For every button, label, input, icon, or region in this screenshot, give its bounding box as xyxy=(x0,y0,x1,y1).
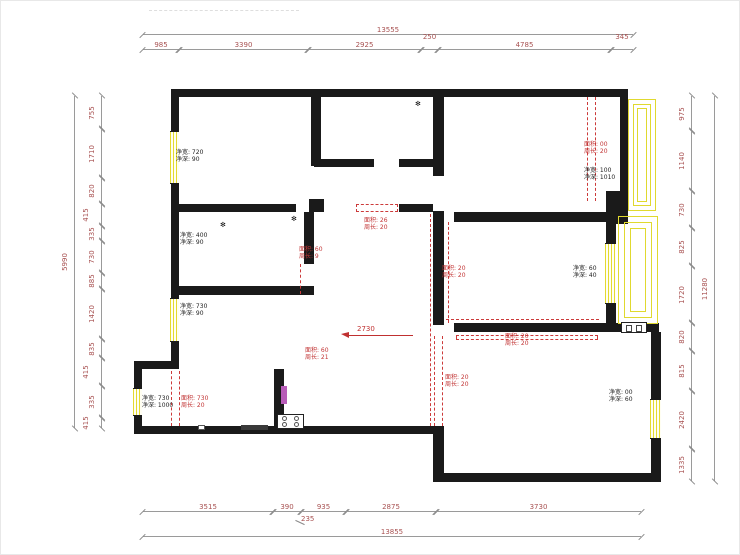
opening-dash-box xyxy=(356,204,398,212)
wall xyxy=(651,439,661,482)
area-annotation-line: 周长: 20 xyxy=(181,402,208,409)
room-size-line: 净深: 60 xyxy=(609,396,633,403)
dimension-label: 3390 xyxy=(235,41,253,49)
floor-plan-canvas: 13555 985 3390 2925 250 4785 345 3515 39… xyxy=(0,0,740,555)
wall xyxy=(399,159,433,167)
dimension-segment: 2875 xyxy=(346,511,436,512)
dimension-segment: 1720 xyxy=(691,266,692,323)
dimension-arrow-line xyxy=(348,335,413,336)
wall xyxy=(399,204,433,212)
dimension-segment: 390 xyxy=(273,511,301,512)
paint-dash-line xyxy=(179,371,180,426)
wall xyxy=(134,361,142,388)
dimension-label: 1420 xyxy=(88,305,96,323)
wall xyxy=(171,89,179,131)
dimension-label: 335 xyxy=(88,395,96,408)
dimension-label: 835 xyxy=(88,342,96,355)
dimension-label: 2875 xyxy=(382,503,400,511)
area-annotation: 面积: 00 周长: 20 xyxy=(584,141,608,155)
area-annotation-line: 周长: 20 xyxy=(442,272,466,279)
window xyxy=(133,388,142,416)
area-annotation: 面积: 26 周长: 20 xyxy=(364,217,388,231)
dimension-segment: 1420 xyxy=(101,289,102,339)
paint-dash-line xyxy=(446,319,599,320)
dimension-label: 1335 xyxy=(678,456,686,474)
dimension-label: 985 xyxy=(154,41,167,49)
dimension-label: 1710 xyxy=(88,145,96,163)
dimension-label: 935 xyxy=(317,503,330,511)
dimension-segment: 3390 xyxy=(179,49,308,50)
dimension-label: 3515 xyxy=(199,503,217,511)
dimension-segment: 730 xyxy=(101,241,102,273)
dimension-segment: 2925 xyxy=(308,49,421,50)
room-size-line: 净深: 1000 xyxy=(142,402,173,409)
room-size-line: 净深: 90 xyxy=(176,156,203,163)
room-size-line: 净深: 40 xyxy=(573,272,597,279)
paint-dash-line xyxy=(300,264,301,294)
dimension-label: 415 xyxy=(82,416,90,429)
area-annotation-line: 周长: 20 xyxy=(584,148,608,155)
wall xyxy=(620,89,628,196)
wall xyxy=(454,212,606,222)
light-symbol: ✻ xyxy=(220,222,226,229)
wall xyxy=(606,224,616,243)
dimension-segment: 415 xyxy=(101,358,102,386)
faint-artifact-line xyxy=(149,10,299,11)
paint-dash-line xyxy=(430,214,431,426)
light-symbol: ✻ xyxy=(291,216,297,223)
dimension-label: 3730 xyxy=(530,503,548,511)
area-annotation-line: 周长: 20 xyxy=(445,381,469,388)
dimension-segment: 2420 xyxy=(691,391,692,449)
paint-dash-line xyxy=(442,336,443,426)
dimension-label: 975 xyxy=(678,107,686,120)
dimension-label: 2420 xyxy=(678,411,686,429)
dimension-label: 335 xyxy=(88,227,96,240)
wall xyxy=(311,89,321,166)
dimension-label: 885 xyxy=(88,274,96,287)
dimension-label: 415 xyxy=(82,365,90,378)
dimension-total-left: 5990 xyxy=(74,96,75,428)
dimension-total-right: 11280 xyxy=(714,96,715,481)
wall xyxy=(433,473,661,482)
dimension-segment: 730 xyxy=(691,191,692,228)
dimension-segment: 985 xyxy=(143,49,179,50)
dimension-segment: 415 xyxy=(101,204,102,226)
room-size-label: 净宽: 730 净深: 1000 xyxy=(142,395,173,409)
dimension-label: 1720 xyxy=(678,286,686,304)
wall xyxy=(433,96,444,176)
area-annotation: 面积: 60 周长: 9 xyxy=(299,246,323,260)
dimension-label: 1140 xyxy=(678,152,686,170)
dimension-segment: 755 xyxy=(101,96,102,129)
dimension-segment: 1140 xyxy=(691,131,692,191)
dimension-segment: 975 xyxy=(691,96,692,131)
window xyxy=(605,243,616,304)
room-size-label: 净宽: 60 净深: 40 xyxy=(573,265,597,279)
area-annotation: 面积: 60 周长: 21 xyxy=(305,347,329,361)
room-size-line: 净深: 1010 xyxy=(584,174,615,181)
dimension-arrow-head xyxy=(341,332,349,338)
area-annotation-line: 周长: 21 xyxy=(305,354,329,361)
dimension-segment: 1335 xyxy=(691,449,692,481)
dimension-segment: 3515 xyxy=(143,511,273,512)
cabinet xyxy=(198,425,205,430)
area-annotation-line: 周长: 20 xyxy=(364,224,388,231)
wall xyxy=(171,204,296,212)
dimension-label: 390 xyxy=(280,503,293,511)
room-size-line: 净深: 90 xyxy=(180,310,207,317)
dimension-segment: 345 xyxy=(611,49,633,50)
dimension-label: 5990 xyxy=(61,253,69,271)
wall xyxy=(606,304,616,326)
dimension-label: 345 xyxy=(615,33,628,41)
dimension-total-top: 13555 xyxy=(143,34,633,35)
stove xyxy=(277,414,304,429)
wall xyxy=(651,332,661,399)
dimension-label: 825 xyxy=(678,240,686,253)
dimension-label: 415 xyxy=(82,208,90,221)
area-annotation-line: 周长: 20 xyxy=(505,340,529,347)
dimension-segment: 4785 xyxy=(438,49,611,50)
light-symbol: ✻ xyxy=(415,101,421,108)
window xyxy=(650,399,661,439)
dimension-label: 815 xyxy=(678,364,686,377)
room-size-label: 净宽: 100 净深: 1010 xyxy=(584,167,615,181)
dimension-label: 13555 xyxy=(377,26,399,34)
dimension-label: 755 xyxy=(88,106,96,119)
dimension-label: 13855 xyxy=(381,528,403,536)
dimension-segment: 935 xyxy=(301,511,346,512)
room-size-label: 净宽: 720 净深: 90 xyxy=(176,149,203,163)
dimension-segment: 820 xyxy=(691,323,692,351)
area-annotation: 面积: 730 周长: 20 xyxy=(181,395,208,409)
dimension-label: 820 xyxy=(678,330,686,343)
wall xyxy=(171,89,628,97)
dimension-segment: 815 xyxy=(691,351,692,391)
sink-counter xyxy=(241,425,268,430)
dimension-segment: 825 xyxy=(691,228,692,266)
dimension-label: 730 xyxy=(88,250,96,263)
area-annotation: 面积: 20 周长: 20 xyxy=(505,333,529,347)
balcony-rail xyxy=(630,228,646,312)
area-annotation: 面积: 20 周长: 20 xyxy=(442,265,466,279)
balcony-rail xyxy=(637,108,647,202)
wall-pillar xyxy=(309,199,324,212)
dimension-label: 11280 xyxy=(701,277,709,299)
ac-unit xyxy=(621,322,647,333)
window xyxy=(170,298,179,342)
dimension-segment: 1710 xyxy=(101,129,102,178)
wall xyxy=(171,286,314,295)
dimension-segment: 3730 xyxy=(436,511,641,512)
dimension-label: 4785 xyxy=(516,41,534,49)
room-size-line: 净深: 90 xyxy=(180,239,207,246)
area-annotation: 面积: 20 周长: 20 xyxy=(445,374,469,388)
wall xyxy=(171,184,179,298)
dimension-label: 730 xyxy=(678,203,686,216)
area-annotation-line: 周长: 9 xyxy=(299,253,323,260)
room-size-label: 净宽: 00 净深: 60 xyxy=(609,389,633,403)
wall xyxy=(314,159,374,167)
dimension-label: 250 xyxy=(423,33,436,41)
dimension-total-bottom: 13855 xyxy=(143,536,641,537)
dimension-arrow-label: 2730 xyxy=(357,325,375,333)
dimension-segment: 415 xyxy=(101,418,102,428)
appliance xyxy=(281,386,287,404)
dimension-label: 2925 xyxy=(356,41,374,49)
paint-dash-line xyxy=(434,336,435,426)
room-size-label: 净宽: 400 净深: 90 xyxy=(180,232,207,246)
dimension-segment: 820 xyxy=(101,178,102,204)
room-size-label: 净宽: 730 净深: 90 xyxy=(180,303,207,317)
dimension-label: 820 xyxy=(88,184,96,197)
dimension-segment: 335 xyxy=(101,386,102,418)
dimension-offset-note: 235 xyxy=(301,515,314,523)
